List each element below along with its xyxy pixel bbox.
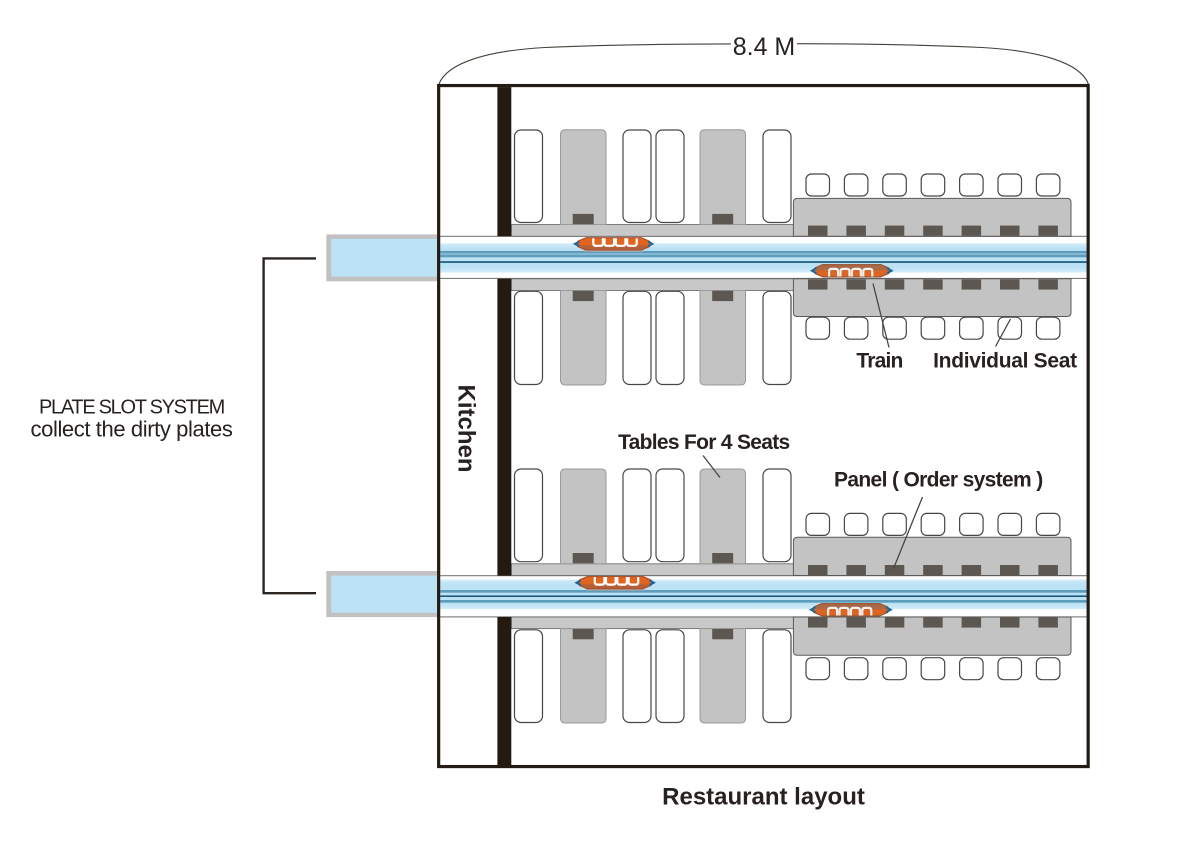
svg-text:Kitchen: Kitchen bbox=[453, 385, 480, 473]
svg-text:8.4 M: 8.4 M bbox=[733, 33, 796, 61]
svg-text:Individual Seat: Individual Seat bbox=[933, 350, 1077, 373]
svg-text:Train: Train bbox=[856, 350, 902, 373]
svg-text:Panel ( Order system ): Panel ( Order system ) bbox=[834, 469, 1043, 492]
svg-text:PLATE SLOT SYSTEM: PLATE SLOT SYSTEM bbox=[39, 396, 225, 418]
svg-text:Restaurant layout: Restaurant layout bbox=[662, 784, 865, 811]
svg-text:collect the dirty plates: collect the dirty plates bbox=[31, 417, 233, 442]
svg-text:Tables For 4 Seats: Tables For 4 Seats bbox=[618, 431, 789, 454]
